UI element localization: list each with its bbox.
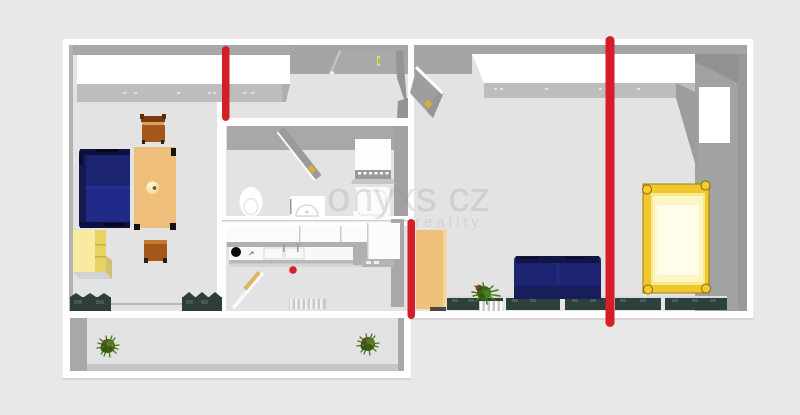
svg-text:reality: reality bbox=[415, 214, 483, 231]
svg-text:onyxs cz: onyxs cz bbox=[327, 173, 490, 220]
